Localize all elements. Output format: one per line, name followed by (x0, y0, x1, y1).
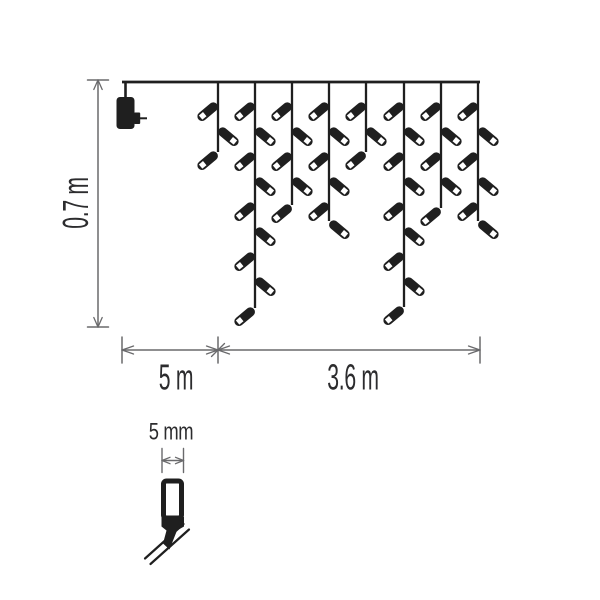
bulb-icon (307, 150, 331, 172)
bulb-icon (270, 202, 294, 224)
bulb-icon (419, 150, 443, 172)
bulb-base (344, 149, 368, 171)
bulb-icon (476, 218, 500, 240)
bulb-base (327, 125, 351, 147)
bulb-base (233, 250, 257, 272)
bulb-base (364, 125, 388, 147)
bulb-base (402, 225, 426, 247)
bulb-base (196, 149, 220, 171)
bulb-base (270, 202, 294, 224)
bulb-icon (456, 100, 480, 122)
bulb-icon (270, 100, 294, 122)
bulb-icon (382, 100, 406, 122)
bulb-icon (233, 250, 257, 272)
lead-length-label: 5 m (159, 358, 193, 398)
bulb-base (456, 200, 480, 222)
bulb-icon (456, 150, 480, 172)
bulb-base (439, 125, 463, 147)
bulb-base (270, 150, 294, 172)
bulb-base (382, 250, 406, 272)
bulb-base (233, 305, 257, 327)
bulb-icon (233, 150, 257, 172)
icicle-light-curtain (117, 82, 501, 328)
bulb-base (290, 175, 314, 197)
bulb-icon (216, 125, 240, 147)
bulb-icon (233, 100, 257, 122)
bulb-icon (253, 175, 277, 197)
bulb-base (307, 100, 331, 122)
bulb-icon (382, 150, 406, 172)
bulb-base (402, 275, 426, 297)
bulb-base (382, 100, 406, 122)
bulb-body (164, 481, 182, 518)
bulb-icon (253, 225, 277, 247)
bulb-base (196, 100, 220, 122)
bulb-base (307, 150, 331, 172)
bulb-base (233, 150, 257, 172)
bulb-base (327, 175, 351, 197)
bulb-size-label: 5 mm (149, 417, 193, 445)
bulb-base (402, 175, 426, 197)
bulb-icon (327, 218, 351, 240)
bulb-base (456, 100, 480, 122)
bulb-icon (402, 225, 426, 247)
bulb-base (233, 100, 257, 122)
product-dimension-diagram: 0.7 m 5 m 3.6 m 5 mm (0, 0, 600, 600)
bulb-base (270, 100, 294, 122)
bulb-base (253, 275, 277, 297)
bulb-icon (344, 149, 368, 171)
bulb-base (307, 200, 331, 222)
bulb-icon (476, 175, 500, 197)
bulb-base (476, 175, 500, 197)
bulb-icon (307, 200, 331, 222)
bulb-base (327, 218, 351, 240)
power-adapter (117, 97, 135, 129)
bulb-icon (382, 250, 406, 272)
bulb-icon (402, 125, 426, 147)
bulb-icon (327, 175, 351, 197)
bulb-icon (456, 200, 480, 222)
bulb-base (344, 100, 368, 122)
bulb-base (253, 125, 277, 147)
bulb-detail-illustration (145, 481, 189, 564)
bulb-icon (419, 100, 443, 122)
bulb-icon (402, 275, 426, 297)
bulb-base (253, 175, 277, 197)
bulb-base (419, 100, 443, 122)
bulb-base (419, 150, 443, 172)
bulb-icon (233, 305, 257, 327)
bulb-base (476, 125, 500, 147)
bulb-base (382, 150, 406, 172)
bulb-base (439, 175, 463, 197)
bulb-icon (196, 149, 220, 171)
bulb-icon (270, 150, 294, 172)
bulb-icon (290, 125, 314, 147)
adapter-plug (134, 113, 140, 125)
bulb-icon (476, 125, 500, 147)
bulb-icon (253, 125, 277, 147)
bulb-icon (382, 200, 406, 222)
bulb-icon (253, 275, 277, 297)
bulb-base (456, 150, 480, 172)
bulb-base (419, 205, 443, 227)
icicle-lights-diagram: 0.7 m 5 m 3.6 m 5 mm (0, 0, 600, 600)
lit-length-label: 3.6 m (327, 358, 378, 398)
bulb-base (382, 304, 406, 326)
bulb-icon (402, 175, 426, 197)
bulb-base (290, 125, 314, 147)
bulb-base (233, 200, 257, 222)
bulb-base (476, 218, 500, 240)
height-dimension-label: 0.7 m (56, 177, 96, 228)
bulb-base (253, 225, 277, 247)
bulb-base (402, 125, 426, 147)
bulb-icon (233, 200, 257, 222)
bulb-icon (307, 100, 331, 122)
bulb-icon (419, 205, 443, 227)
bulb-icon (290, 175, 314, 197)
bulb-base (382, 200, 406, 222)
bulb-icon (196, 100, 220, 122)
bulb-icon (344, 100, 368, 122)
bulb-icon (439, 125, 463, 147)
bulb-base (216, 125, 240, 147)
bulb-icon (327, 125, 351, 147)
bulb-icon (364, 125, 388, 147)
bulb-icon (439, 175, 463, 197)
bulb-icon (382, 304, 406, 326)
